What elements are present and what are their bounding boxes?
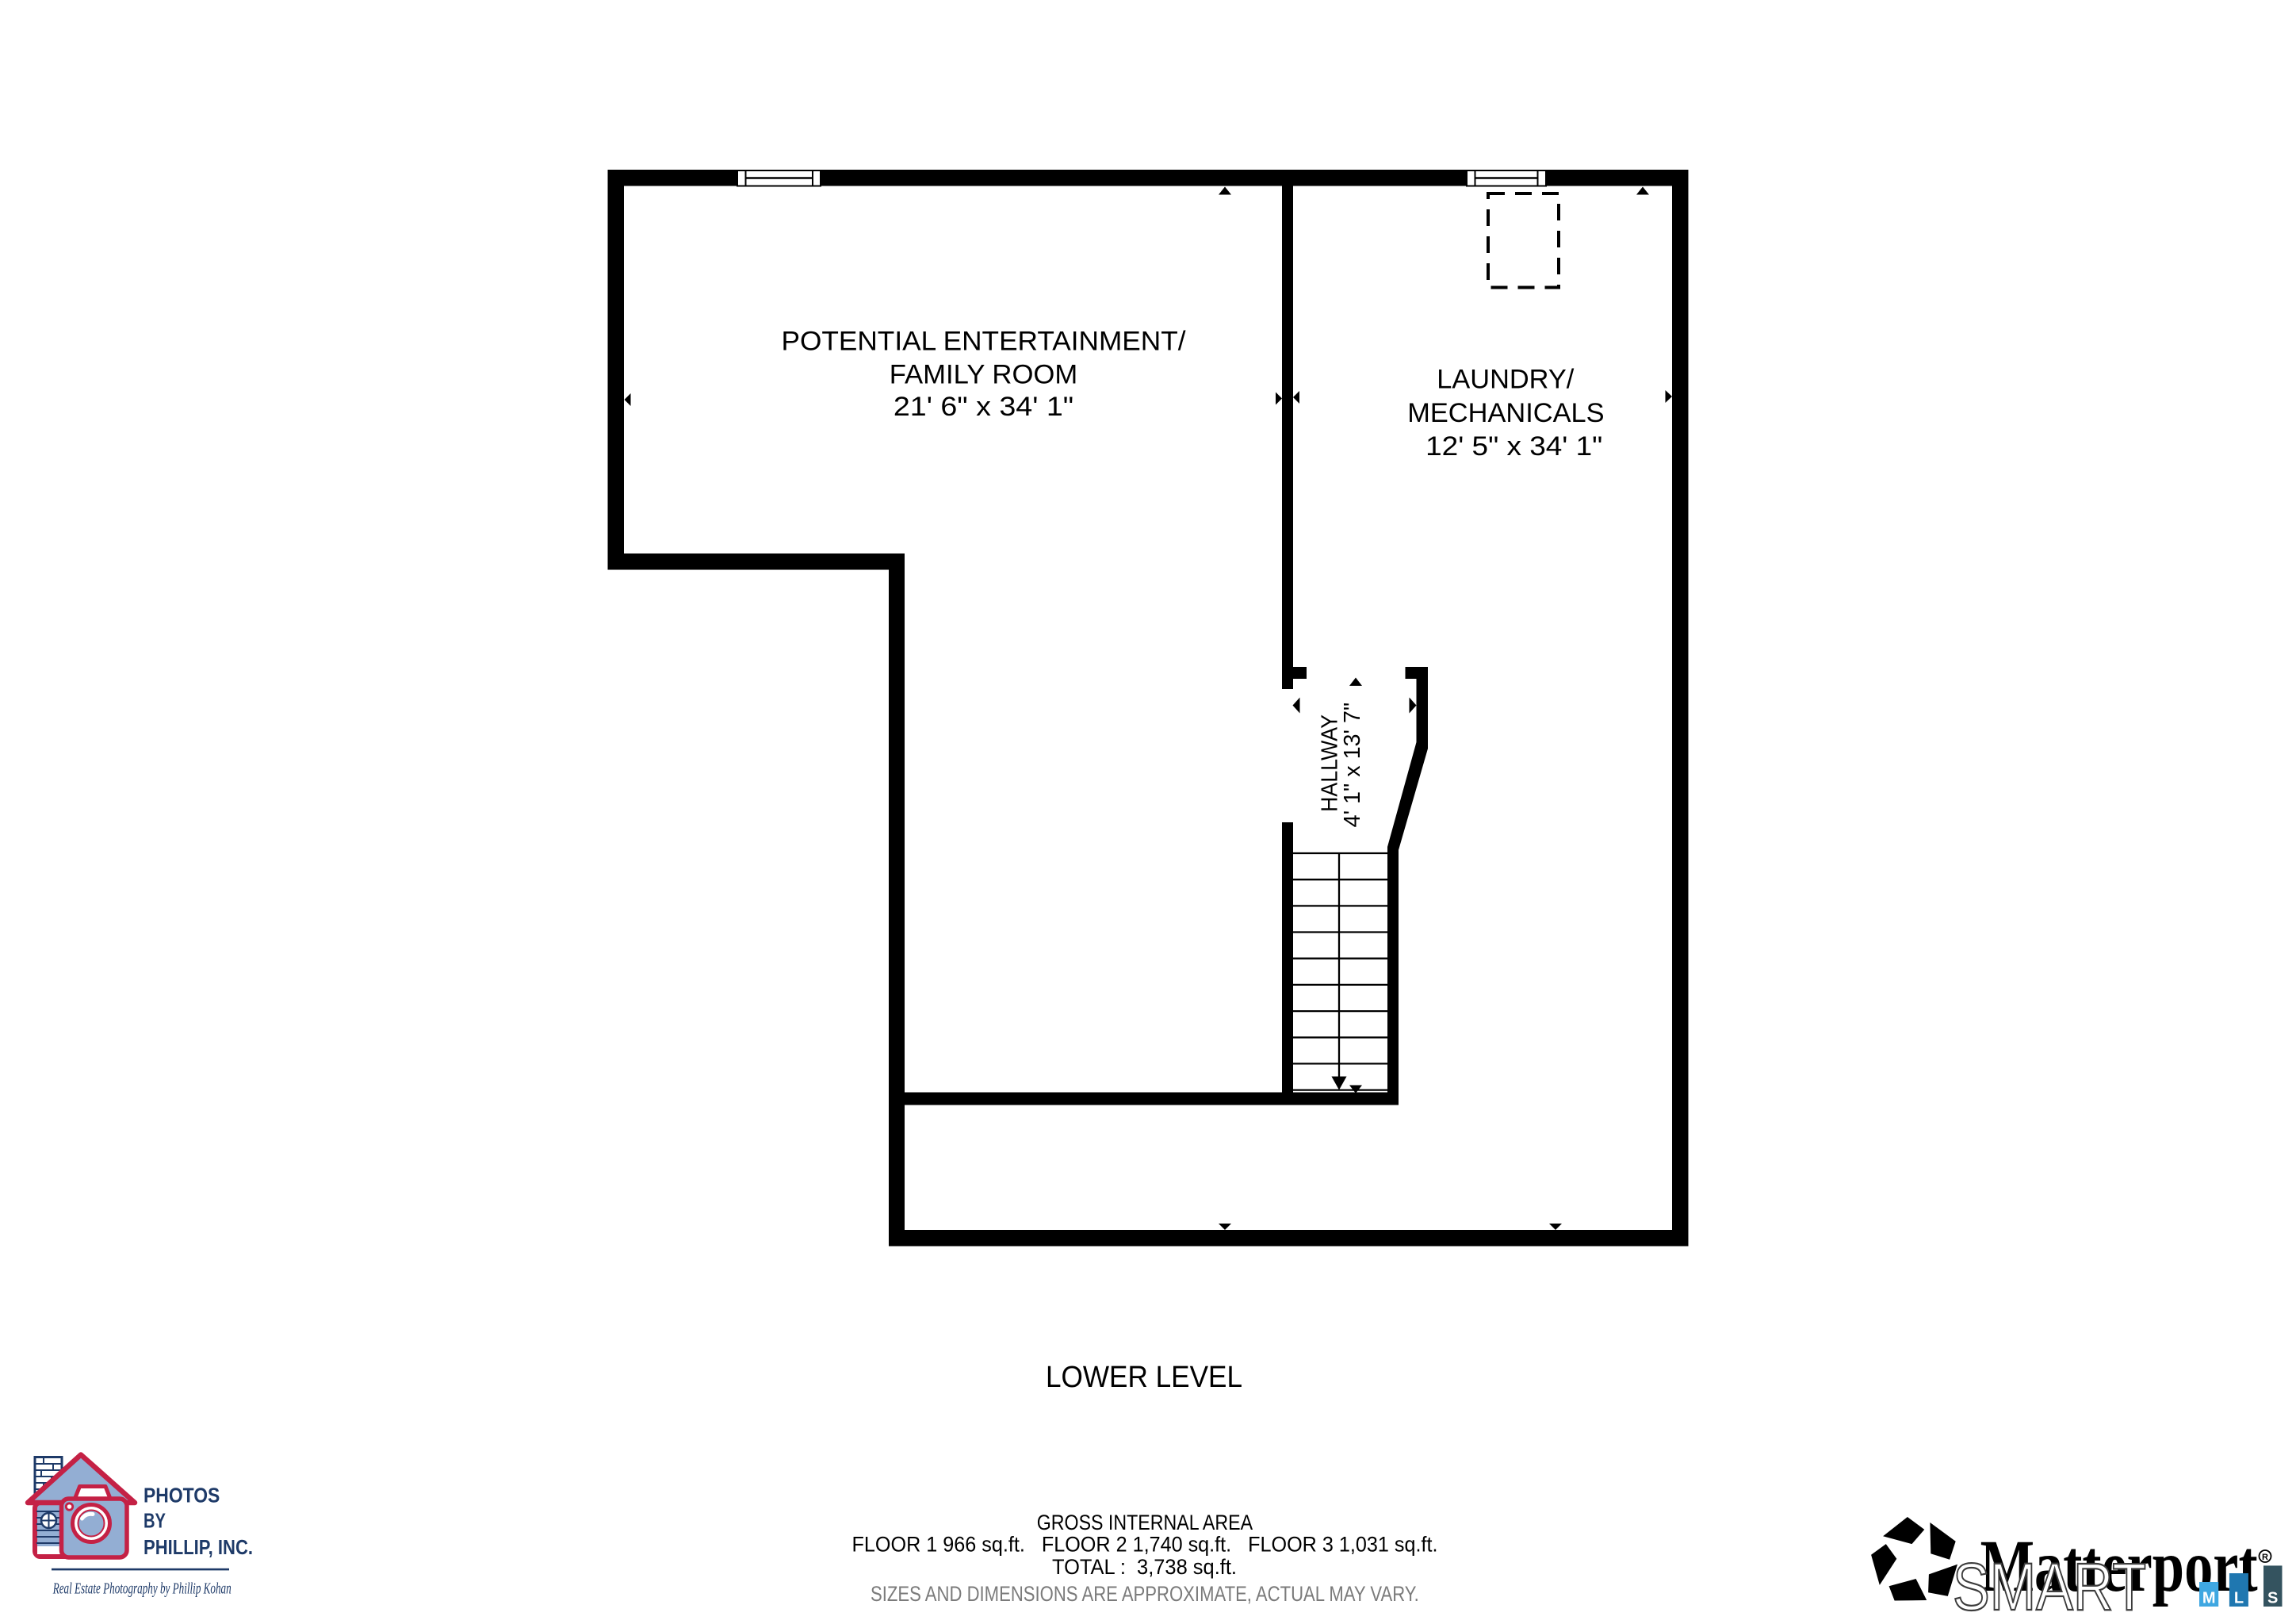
svg-text:HALLWAY: HALLWAY — [1318, 714, 1343, 812]
svg-text:GROSS INTERNAL AREA: GROSS INTERNAL AREA — [1037, 1511, 1253, 1534]
svg-text:LOWER LEVEL: LOWER LEVEL — [1046, 1361, 1242, 1394]
svg-text:M: M — [2202, 1590, 2216, 1607]
svg-text:L: L — [2234, 1590, 2244, 1607]
svg-text:POTENTIAL ENTERTAINMENT/: POTENTIAL ENTERTAINMENT/ — [782, 327, 1186, 357]
svg-text:SMART: SMART — [1953, 1549, 2146, 1624]
svg-text:R: R — [2262, 1553, 2268, 1562]
svg-text:4' 1" x 13' 7": 4' 1" x 13' 7" — [1340, 703, 1365, 828]
svg-text:LAUNDRY/: LAUNDRY/ — [1437, 365, 1574, 395]
svg-text:FLOOR 1 966 sq.ft. FLOOR 2 1: FLOOR 1 966 sq.ft. FLOOR 2 1,740 sq.ft. … — [852, 1532, 1438, 1556]
svg-text:PHOTOS: PHOTOS — [143, 1484, 220, 1507]
svg-text:12' 5" x 34' 1": 12' 5" x 34' 1" — [1425, 431, 1602, 462]
svg-text:S: S — [2267, 1590, 2278, 1607]
svg-text:21' 6" x 34' 1": 21' 6" x 34' 1" — [894, 392, 1073, 422]
svg-text:Real Estate Photography by Phi: Real Estate Photography by Phillip Kohan — [52, 1580, 232, 1598]
svg-text:MECHANICALS: MECHANICALS — [1407, 398, 1604, 428]
svg-text:TOTAL : 3,738 sq.ft.: TOTAL : 3,738 sq.ft. — [1052, 1555, 1237, 1579]
svg-text:BY: BY — [143, 1508, 166, 1532]
svg-text:SIZES AND DIMENSIONS ARE APPRO: SIZES AND DIMENSIONS ARE APPROXIMATE, AC… — [871, 1582, 1419, 1606]
svg-text:PHILLIP, INC.: PHILLIP, INC. — [143, 1535, 253, 1559]
svg-text:FAMILY ROOM: FAMILY ROOM — [890, 359, 1077, 389]
